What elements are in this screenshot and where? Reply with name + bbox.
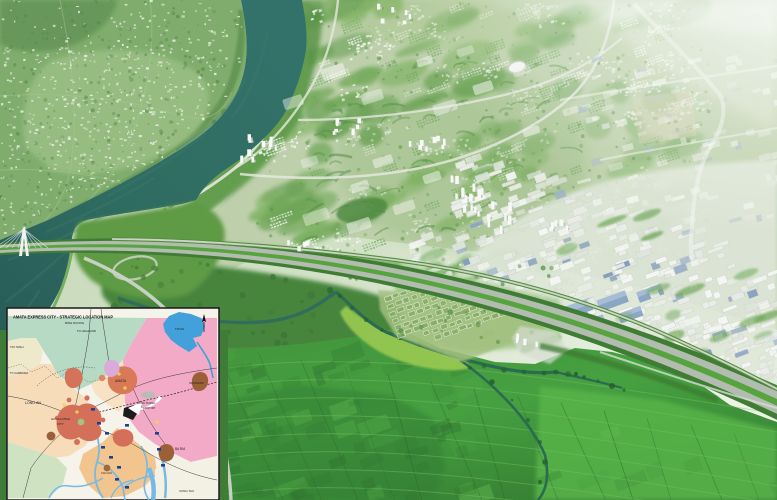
svg-text:CITY: CITY bbox=[57, 422, 64, 426]
svg-text:AMATA: AMATA bbox=[115, 379, 127, 383]
svg-text:AMATA EXPRESS CITY - STRATEGIC: AMATA EXPRESS CITY - STRATEGIC LOCATION … bbox=[13, 315, 113, 320]
svg-text:VUNG TAU: VUNG TAU bbox=[179, 489, 194, 493]
svg-text:TO CAMBODIA: TO CAMBODIA bbox=[10, 371, 28, 375]
svg-text:LONG AN: LONG AN bbox=[25, 401, 41, 405]
svg-text:NORTHERN: NORTHERN bbox=[189, 381, 204, 385]
svg-text:CAN GIO: CAN GIO bbox=[101, 471, 112, 475]
svg-text:LONG THANH: LONG THANH bbox=[137, 401, 155, 405]
svg-text:AIRPORT: AIRPORT bbox=[143, 406, 156, 410]
svg-text:TRI AN: TRI AN bbox=[175, 327, 184, 331]
svg-text:TAY NINH: TAY NINH bbox=[10, 345, 24, 349]
svg-text:HO CHI MINH: HO CHI MINH bbox=[51, 417, 70, 421]
svg-text:BA RIA: BA RIA bbox=[175, 447, 186, 451]
svg-text:BINH DUONG: BINH DUONG bbox=[65, 321, 85, 325]
svg-text:TO HIGHLAND: TO HIGHLAND bbox=[77, 329, 96, 333]
